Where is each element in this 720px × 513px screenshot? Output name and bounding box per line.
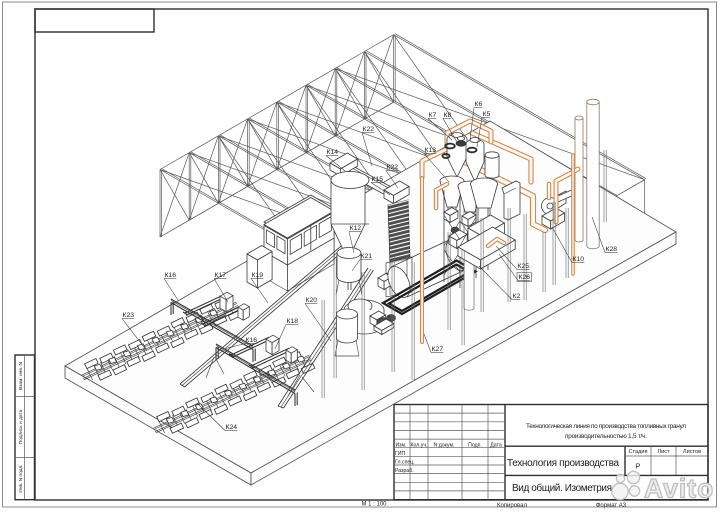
svg-text:Вид общий. Изометрия: Вид общий. Изометрия	[512, 482, 612, 494]
svg-text:К10: К10	[573, 256, 585, 263]
svg-text:К17: К17	[215, 272, 227, 279]
svg-text:К6: К6	[475, 101, 483, 108]
svg-text:К8: К8	[444, 112, 452, 119]
svg-text:К2: К2	[513, 293, 521, 300]
svg-text:К5: К5	[483, 111, 491, 118]
svg-text:Подпись и дата: Подпись и дата	[18, 409, 24, 444]
svg-text:К13: К13	[425, 147, 437, 154]
svg-text:К26: К26	[519, 274, 531, 281]
svg-text:К15: К15	[372, 176, 384, 183]
svg-text:N докум.: N докум.	[434, 443, 455, 449]
svg-text:Изм.: Изм.	[395, 443, 406, 449]
svg-text:К22: К22	[363, 126, 375, 133]
svg-text:К18: К18	[287, 318, 299, 325]
svg-text:Дата: Дата	[490, 443, 502, 449]
svg-text:Р: Р	[636, 464, 641, 471]
svg-text:К21: К21	[361, 253, 373, 260]
svg-text:Копировал: Копировал	[497, 503, 528, 509]
svg-text:К20: К20	[306, 297, 318, 304]
svg-text:К16: К16	[246, 337, 258, 344]
svg-text:К7: К7	[429, 112, 437, 119]
svg-text:Лист: Лист	[657, 449, 670, 455]
svg-text:Технология производства: Технология производства	[507, 458, 619, 469]
svg-text:Технологическая линия по произ: Технологическая линия по производства то…	[526, 423, 686, 430]
svg-text:Гл.спец.: Гл.спец.	[395, 460, 415, 466]
svg-text:К27: К27	[432, 346, 444, 353]
svg-text:К24: К24	[226, 424, 238, 431]
svg-text:К25: К25	[518, 263, 530, 270]
svg-text:ГИП: ГИП	[395, 451, 406, 457]
svg-text:Взам. инв. N: Взам. инв. N	[18, 361, 24, 390]
svg-text:Кол.уч.: Кол.уч.	[411, 443, 428, 449]
svg-text:производительностью 1,5 т/ч.: производительностью 1,5 т/ч.	[565, 433, 647, 440]
svg-text:К14: К14	[327, 149, 339, 156]
svg-text:Листов: Листов	[683, 449, 701, 455]
svg-text:М 1 : 100: М 1 : 100	[361, 502, 387, 508]
svg-text:К22: К22	[387, 164, 399, 171]
svg-text:Разраб.: Разраб.	[395, 468, 414, 474]
svg-text:Формат А3: Формат А3	[596, 503, 627, 509]
svg-text:К28: К28	[606, 246, 618, 253]
svg-text:К16: К16	[165, 272, 177, 279]
svg-text:К23: К23	[123, 312, 135, 319]
svg-text:К19: К19	[252, 272, 264, 279]
svg-text:К12: К12	[350, 225, 362, 232]
svg-text:Avito: Avito	[644, 474, 714, 504]
svg-text:Подп.: Подп.	[468, 443, 482, 449]
svg-text:Стадия: Стадия	[628, 449, 647, 455]
svg-text:Инв. N подл.: Инв. N подл.	[18, 464, 24, 492]
